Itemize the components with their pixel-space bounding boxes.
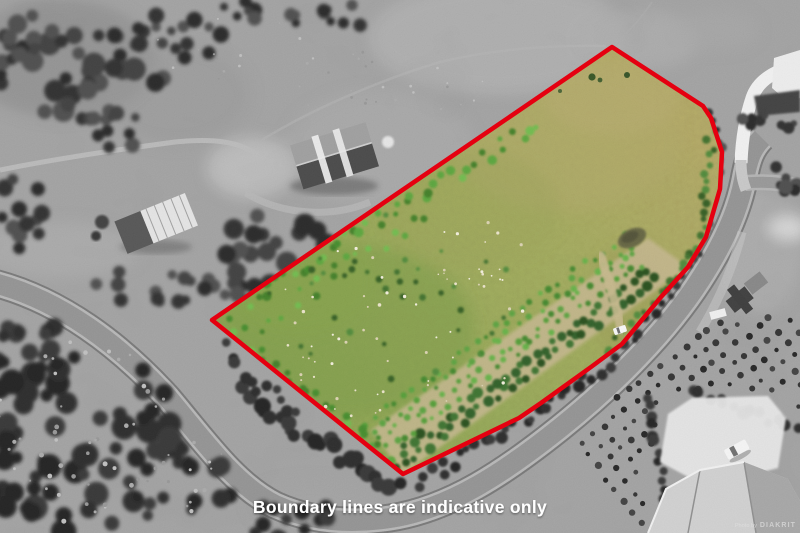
aerial-photo: Boundary lines are indicative only Photo… [0, 0, 800, 533]
photo-grain [0, 0, 800, 533]
caption-text: Boundary lines are indicative only [253, 497, 547, 517]
watermark-text: Photo byDIAKRIT [735, 522, 796, 529]
watermark-brand: DIAKRIT [760, 522, 796, 529]
aerial-photo-canvas: Boundary lines are indicative only Photo… [0, 0, 800, 533]
watermark-prefix: Photo by [735, 523, 757, 529]
